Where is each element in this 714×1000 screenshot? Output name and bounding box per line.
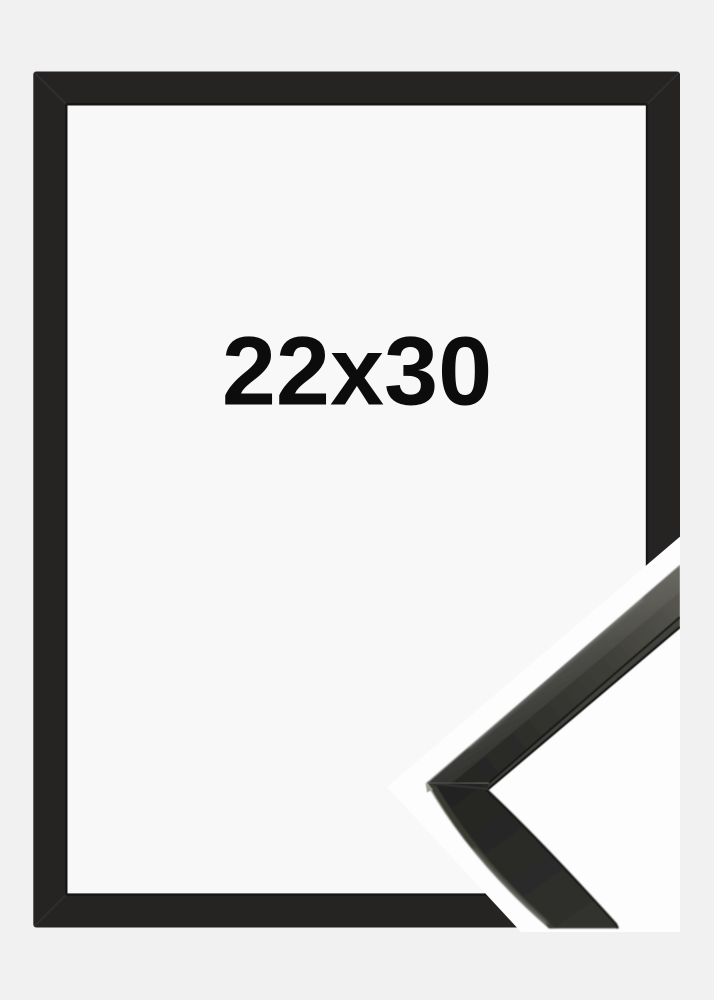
- svg-text:22x30: 22x30: [222, 317, 492, 426]
